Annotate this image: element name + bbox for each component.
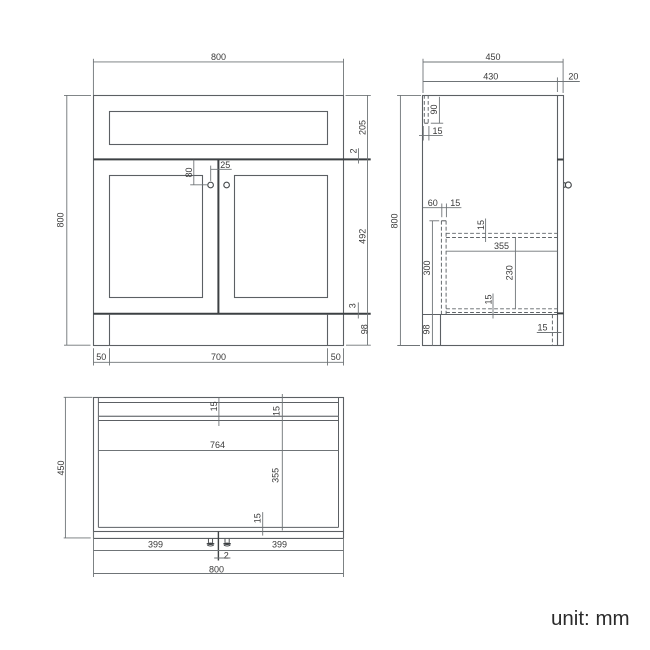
svg-text:98: 98 bbox=[422, 324, 432, 334]
svg-text:15: 15 bbox=[253, 513, 263, 523]
svg-text:15: 15 bbox=[484, 294, 494, 304]
svg-text:50: 50 bbox=[96, 352, 106, 362]
svg-text:800: 800 bbox=[55, 212, 65, 227]
svg-text:230: 230 bbox=[505, 265, 515, 280]
svg-text:90: 90 bbox=[429, 104, 439, 114]
svg-text:15: 15 bbox=[432, 126, 442, 136]
svg-text:492: 492 bbox=[357, 229, 367, 244]
svg-text:15: 15 bbox=[450, 198, 460, 208]
svg-text:700: 700 bbox=[211, 352, 226, 362]
svg-text:399: 399 bbox=[148, 539, 163, 549]
svg-text:2: 2 bbox=[349, 148, 359, 153]
svg-text:15: 15 bbox=[537, 323, 547, 333]
svg-text:3: 3 bbox=[347, 303, 357, 308]
svg-text:50: 50 bbox=[331, 352, 341, 362]
svg-text:25: 25 bbox=[220, 160, 230, 170]
svg-text:800: 800 bbox=[211, 52, 226, 62]
svg-text:800: 800 bbox=[389, 213, 399, 228]
svg-text:355: 355 bbox=[494, 241, 509, 251]
svg-text:764: 764 bbox=[210, 440, 225, 450]
svg-text:2: 2 bbox=[224, 550, 229, 560]
svg-text:450: 450 bbox=[56, 460, 66, 475]
svg-text:399: 399 bbox=[272, 539, 287, 549]
svg-text:15: 15 bbox=[476, 220, 486, 230]
svg-text:15: 15 bbox=[271, 406, 281, 416]
svg-text:300: 300 bbox=[422, 260, 432, 275]
svg-text:355: 355 bbox=[271, 468, 281, 483]
svg-text:430: 430 bbox=[483, 72, 498, 82]
svg-text:98: 98 bbox=[359, 324, 369, 334]
svg-text:60: 60 bbox=[428, 198, 438, 208]
svg-text:800: 800 bbox=[209, 564, 224, 574]
svg-text:450: 450 bbox=[485, 52, 500, 62]
svg-text:15: 15 bbox=[209, 401, 219, 411]
svg-text:80: 80 bbox=[184, 167, 194, 177]
svg-text:205: 205 bbox=[357, 120, 367, 135]
svg-text:20: 20 bbox=[568, 72, 578, 82]
